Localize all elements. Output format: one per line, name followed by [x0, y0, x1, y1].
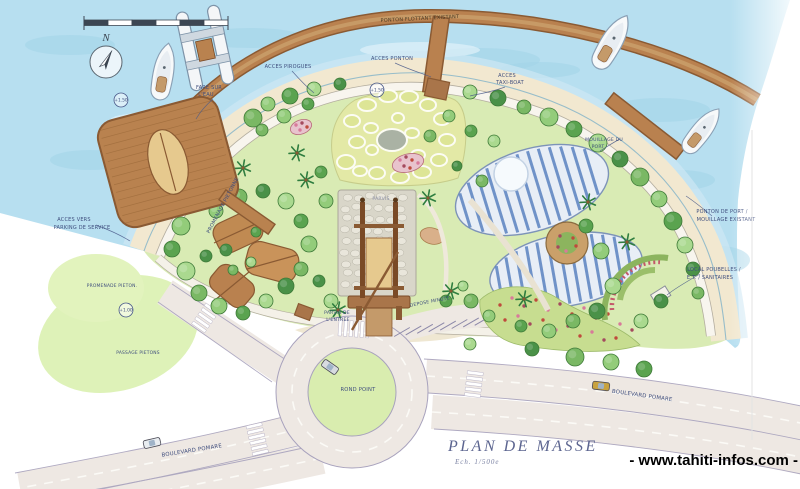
tree-highlight [679, 239, 686, 246]
tree-highlight [607, 280, 614, 287]
plaza-stone [340, 226, 349, 233]
post-finial [360, 198, 365, 203]
paving-cell [392, 113, 404, 123]
flower-dot [398, 158, 401, 161]
plaza-stone [398, 214, 407, 221]
tree-highlight [527, 344, 533, 350]
tree-highlight [445, 112, 450, 117]
tree-highlight [284, 90, 291, 97]
plaza-stone [343, 194, 352, 201]
car-windshield [598, 383, 605, 389]
tree-highlight [246, 111, 254, 119]
flower-dot [614, 336, 617, 339]
plaza-stone [343, 214, 352, 221]
scale-bar-segment [84, 20, 108, 26]
tree-highlight [633, 170, 641, 178]
plaza-stone [373, 228, 382, 235]
paving-cell [369, 167, 385, 179]
paving-cell [344, 115, 360, 127]
annotation-label: PARKING DE SERVICE [54, 225, 111, 231]
flower-dot [571, 236, 574, 239]
tree-highlight [261, 296, 267, 302]
tree-highlight [304, 100, 309, 105]
tree-highlight [568, 123, 575, 130]
tree-highlight [238, 308, 244, 314]
spot-level-value: +1.50 [114, 98, 128, 104]
monument-post [393, 202, 398, 298]
monument-post [360, 202, 365, 298]
annotation-label: PARVIS [372, 196, 389, 202]
palm-trunk [241, 166, 244, 169]
flower-dot [618, 322, 621, 325]
annotation-label: ACCES VERS [57, 217, 90, 223]
palm-trunk [586, 200, 589, 203]
scale-note: Ech. 1/500e [455, 458, 499, 466]
roof-dome [494, 157, 528, 191]
site-plan-page: +1.50+1.50+1.00 PONTON FLOTTANT EXISTANT… [0, 0, 800, 489]
annotation-label: ACCES PONTON [371, 56, 413, 62]
palm-trunk [295, 151, 298, 154]
monument-leg [396, 306, 402, 320]
crossbeam [354, 224, 404, 228]
annotation-label: ACCES PIROGUES [265, 64, 312, 70]
paving-cell [366, 145, 378, 155]
flower-dot [602, 338, 605, 341]
scale-bar-segment [204, 20, 228, 26]
plaza-stone [398, 194, 407, 201]
flower-dot [558, 234, 561, 237]
tree-highlight [336, 80, 341, 85]
tree-highlight [166, 243, 173, 250]
flower-dot [503, 318, 506, 321]
tree-highlight [517, 322, 522, 327]
flower-dot [528, 322, 531, 325]
flower-dot [516, 314, 519, 317]
paving-cell [364, 123, 378, 133]
tree-highlight [492, 92, 499, 99]
tree-highlight [315, 277, 320, 282]
tree-highlight [614, 153, 621, 160]
spot-level-value: +1.00 [119, 308, 133, 314]
tree-highlight [252, 228, 257, 233]
flower-dot [630, 328, 633, 331]
tree-highlight [694, 289, 699, 294]
post-finial [393, 198, 398, 203]
scale-bar-segment [108, 20, 132, 26]
tree-highlight [638, 363, 645, 370]
flower-dot [416, 161, 419, 164]
tree-highlight [636, 316, 642, 322]
plaza-stone [341, 206, 350, 213]
paving-cell [358, 99, 376, 111]
tree-highlight [229, 266, 234, 271]
spot-level-value: +1.50 [370, 88, 384, 94]
compass-north-label: N [101, 32, 110, 44]
annotation-label: E.T. / SANITAIRES [687, 275, 733, 281]
tree-highlight [466, 296, 472, 302]
monument-walkway [366, 306, 392, 336]
flower-dot [402, 164, 405, 167]
tree-highlight [222, 246, 227, 251]
plaza-stone [398, 269, 407, 276]
palm-trunk [625, 240, 628, 243]
plaza-stone [376, 216, 385, 223]
tree-highlight [326, 296, 332, 302]
annotation-label: FARE SUR [196, 85, 222, 91]
tree-highlight [280, 195, 287, 202]
flower-dot [558, 302, 561, 305]
tree-highlight [490, 137, 495, 142]
plaza-stone [341, 281, 350, 288]
tree-highlight [656, 296, 662, 302]
annotation-label: PASSAGE PIETONS [116, 350, 159, 356]
annotation-label: ACCES [498, 73, 516, 79]
paving-cell [349, 136, 365, 148]
tree-highlight [595, 245, 602, 252]
flower-dot [300, 121, 303, 124]
palm-trunk [449, 289, 452, 292]
annotation-label: L'ENTREE [326, 317, 350, 323]
tree-highlight [426, 132, 431, 137]
annotation-label: L'EAU [198, 92, 214, 98]
flower-dot [541, 318, 544, 321]
tree-highlight [666, 214, 674, 222]
tree-highlight [465, 87, 471, 93]
flower-dot [510, 296, 513, 299]
flower-dot [410, 158, 413, 161]
tree-highlight [544, 326, 550, 332]
paving-cell [420, 99, 436, 111]
plaza-stone [385, 205, 394, 212]
annotation-label: ROND POINT [340, 387, 376, 393]
tree-highlight [317, 168, 322, 173]
flower-dot [305, 125, 308, 128]
tree-highlight [478, 177, 483, 182]
tree-highlight [247, 258, 252, 263]
car [592, 381, 610, 391]
plaza-stone [342, 238, 351, 245]
tree-highlight [279, 111, 285, 117]
annotation-label: MOUILLAGE DU [585, 137, 623, 143]
paving-cell [431, 154, 447, 166]
tree-highlight [581, 221, 587, 227]
annotation-label: PROMENADE PIETON. [87, 283, 138, 289]
palm-trunk [522, 297, 525, 300]
tree-highlight [174, 219, 182, 227]
tree-highlight [653, 193, 660, 200]
tree-highlight [280, 280, 287, 287]
tree-highlight [453, 162, 458, 167]
flower-dot [556, 245, 559, 248]
tree-highlight [591, 305, 598, 312]
plaza-stone [340, 249, 349, 256]
flower-dot [294, 123, 297, 126]
plaza-stone [343, 269, 352, 276]
paving-cell [337, 155, 355, 169]
scale-bar-segment [180, 20, 204, 26]
annotation-label: PARVIS DE [324, 310, 350, 316]
tree-highlight [568, 350, 576, 358]
tree-highlight [202, 252, 207, 257]
central-stone [377, 129, 407, 151]
annotation-label: PORT [592, 144, 605, 150]
tree-highlight [258, 186, 264, 192]
paving-cell [400, 91, 418, 103]
tree-highlight [258, 126, 263, 131]
flower-dot [404, 155, 407, 158]
tree-highlight [263, 99, 269, 105]
tree-highlight [303, 238, 310, 245]
flower-dot [590, 330, 593, 333]
plaza-stone [365, 216, 374, 223]
scale-bar-segment [132, 20, 156, 26]
page-title: PLAN DE MASSE [448, 438, 608, 456]
plaza-stone [374, 205, 383, 212]
paving-cell [439, 134, 455, 146]
flower-dot [534, 298, 537, 301]
tree-highlight [179, 264, 187, 272]
tree-highlight [296, 264, 302, 270]
paving-cell [353, 166, 367, 176]
plaza-stone [352, 203, 361, 210]
palm-trunk [304, 178, 307, 181]
tree-highlight [485, 312, 490, 317]
flower-dot [582, 306, 585, 309]
plaza-stone [341, 261, 350, 268]
watermark: - www.tahiti-infos.com - [612, 452, 798, 469]
tree-highlight [321, 196, 327, 202]
palm-trunk [426, 196, 429, 199]
tree-highlight [605, 356, 612, 363]
tree-highlight [467, 127, 472, 132]
tree-highlight [542, 110, 550, 118]
right-fade [730, 0, 800, 345]
tree-highlight [519, 102, 525, 108]
gangway-platform [424, 78, 449, 100]
plaza-stone [351, 250, 360, 257]
tree-highlight [193, 287, 200, 294]
site-plan-drawing: +1.50+1.50+1.00 PONTON FLOTTANT EXISTANT… [0, 0, 800, 489]
flower-dot [564, 249, 567, 252]
flower-dot [298, 128, 301, 131]
flower-dot [498, 303, 501, 306]
plaza-stone [397, 238, 406, 245]
flower-dot [574, 244, 577, 247]
tree-highlight [466, 340, 471, 345]
monument-panel [366, 238, 392, 288]
annotation-label: TAXI-BOAT [495, 80, 524, 86]
tree-highlight [213, 300, 220, 307]
tree-highlight [459, 282, 464, 287]
flower-dot [408, 166, 411, 169]
scale-bar-segment [156, 20, 180, 26]
flower-dot [578, 334, 581, 337]
tree-highlight [568, 316, 574, 322]
tree-highlight [296, 216, 302, 222]
